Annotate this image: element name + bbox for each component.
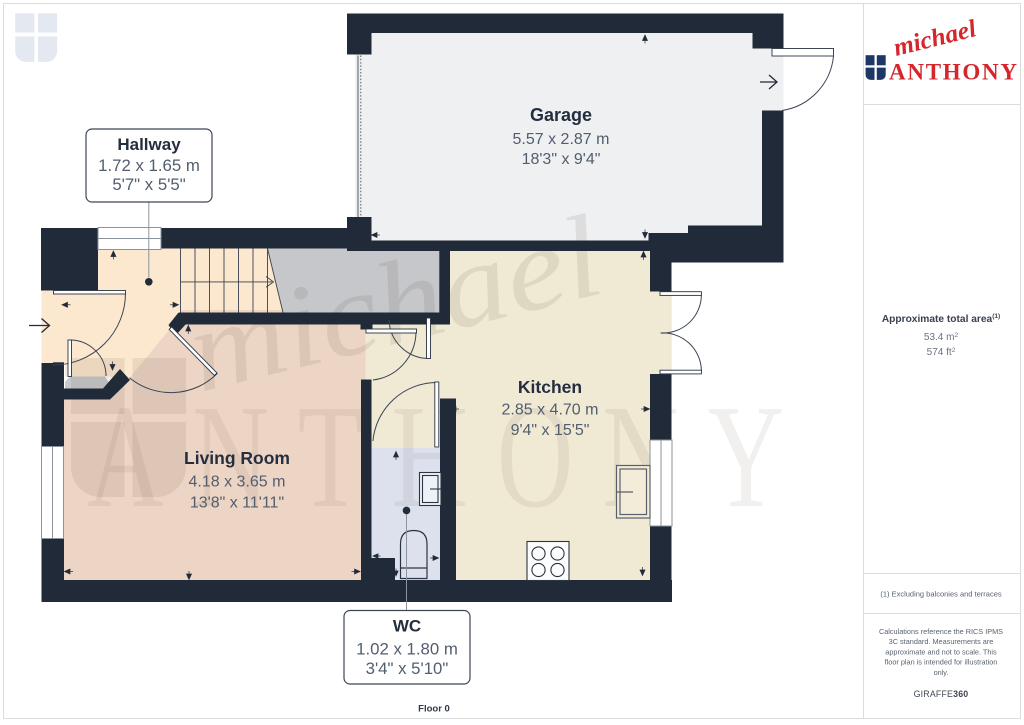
- svg-text:ANTHONY: ANTHONY: [889, 60, 1017, 85]
- svg-text:Calculations reference the RIC: Calculations reference the RICS IPMS: [879, 627, 1003, 636]
- svg-text:13'8" x 11'11": 13'8" x 11'11": [190, 495, 284, 512]
- svg-text:2.85 x 4.70 m: 2.85 x 4.70 m: [502, 402, 599, 419]
- svg-text:Living Room: Living Room: [184, 448, 290, 468]
- svg-text:9'4" x 15'5": 9'4" x 15'5": [511, 422, 590, 439]
- svg-text:574 ft2: 574 ft2: [927, 347, 956, 358]
- svg-text:3C standard. Measurements are: 3C standard. Measurements are: [889, 637, 994, 646]
- svg-text:only.: only.: [934, 668, 949, 677]
- svg-text:floor plan is intended for ill: floor plan is intended for illustration: [885, 658, 998, 667]
- svg-text:3'4" x 5'10": 3'4" x 5'10": [366, 659, 449, 678]
- svg-text:Floor 0: Floor 0: [418, 704, 450, 715]
- svg-text:5.57 x 2.87 m: 5.57 x 2.87 m: [513, 131, 610, 148]
- svg-text:53.4 m2: 53.4 m2: [924, 332, 959, 343]
- svg-text:Garage: Garage: [530, 105, 592, 125]
- svg-text:4.18 x 3.65 m: 4.18 x 3.65 m: [189, 474, 286, 491]
- svg-text:GIRAFFE360: GIRAFFE360: [914, 689, 969, 699]
- svg-text:Approximate total area(1): Approximate total area(1): [882, 313, 1000, 325]
- svg-text:Kitchen: Kitchen: [518, 377, 582, 397]
- svg-text:Hallway: Hallway: [117, 135, 181, 154]
- svg-text:5'7" x 5'5": 5'7" x 5'5": [112, 175, 185, 194]
- svg-text:(1) Excluding balconies and te: (1) Excluding balconies and terraces: [880, 590, 1002, 599]
- svg-text:18'3" x 9'4": 18'3" x 9'4": [522, 151, 601, 168]
- svg-text:WC: WC: [393, 617, 421, 636]
- svg-text:approximate and not to scale.: approximate and not to scale. This: [885, 647, 997, 656]
- svg-text:1.72 x 1.65 m: 1.72 x 1.65 m: [98, 156, 200, 175]
- svg-text:1.02 x 1.80 m: 1.02 x 1.80 m: [356, 640, 458, 659]
